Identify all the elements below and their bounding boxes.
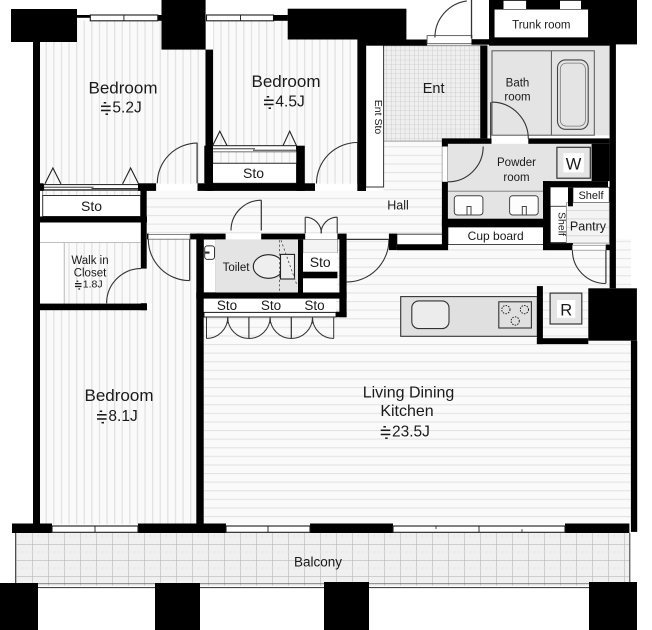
svg-text:Sto: Sto (304, 298, 324, 313)
svg-text:Walk in: Walk in (71, 255, 108, 267)
svg-text:Hall: Hall (387, 199, 409, 213)
svg-text:room: room (503, 172, 529, 184)
svg-text:8.1J: 8.1J (108, 408, 137, 425)
svg-text:Bath: Bath (506, 78, 530, 90)
svg-text:Sto: Sto (261, 298, 281, 313)
svg-text:4.5J: 4.5J (275, 94, 304, 111)
svg-text:Closet: Closet (74, 267, 107, 279)
svg-text:Pantry: Pantry (570, 220, 607, 234)
svg-text:Bedroom: Bedroom (85, 386, 154, 405)
svg-text:Sto: Sto (243, 165, 264, 181)
svg-text:1.8J: 1.8J (83, 279, 103, 291)
svg-text:5.2J: 5.2J (112, 100, 141, 117)
svg-text:Sto: Sto (310, 254, 331, 270)
svg-text:23.5J: 23.5J (392, 424, 430, 441)
svg-text:Cup board: Cup board (468, 229, 524, 243)
svg-text:Ent Sto: Ent Sto (372, 100, 384, 135)
svg-text:Bedroom: Bedroom (252, 72, 321, 91)
svg-text:Shelf: Shelf (578, 190, 604, 202)
svg-text:R: R (560, 301, 572, 319)
svg-text:Powder: Powder (497, 157, 536, 169)
svg-text:Kitchen: Kitchen (380, 403, 433, 420)
svg-text:Living Dining: Living Dining (363, 385, 455, 402)
svg-text:Balcony: Balcony (294, 555, 342, 570)
svg-text:Toilet: Toilet (223, 262, 251, 274)
svg-text:Sto: Sto (217, 298, 237, 313)
svg-text:Trunk room: Trunk room (512, 20, 570, 32)
svg-text:Sto: Sto (81, 198, 102, 214)
svg-text:Shelf: Shelf (556, 212, 568, 236)
svg-text:Bedroom: Bedroom (89, 79, 158, 98)
svg-text:W: W (566, 155, 582, 173)
svg-text:Ent: Ent (423, 81, 445, 97)
svg-text:room: room (504, 92, 530, 104)
